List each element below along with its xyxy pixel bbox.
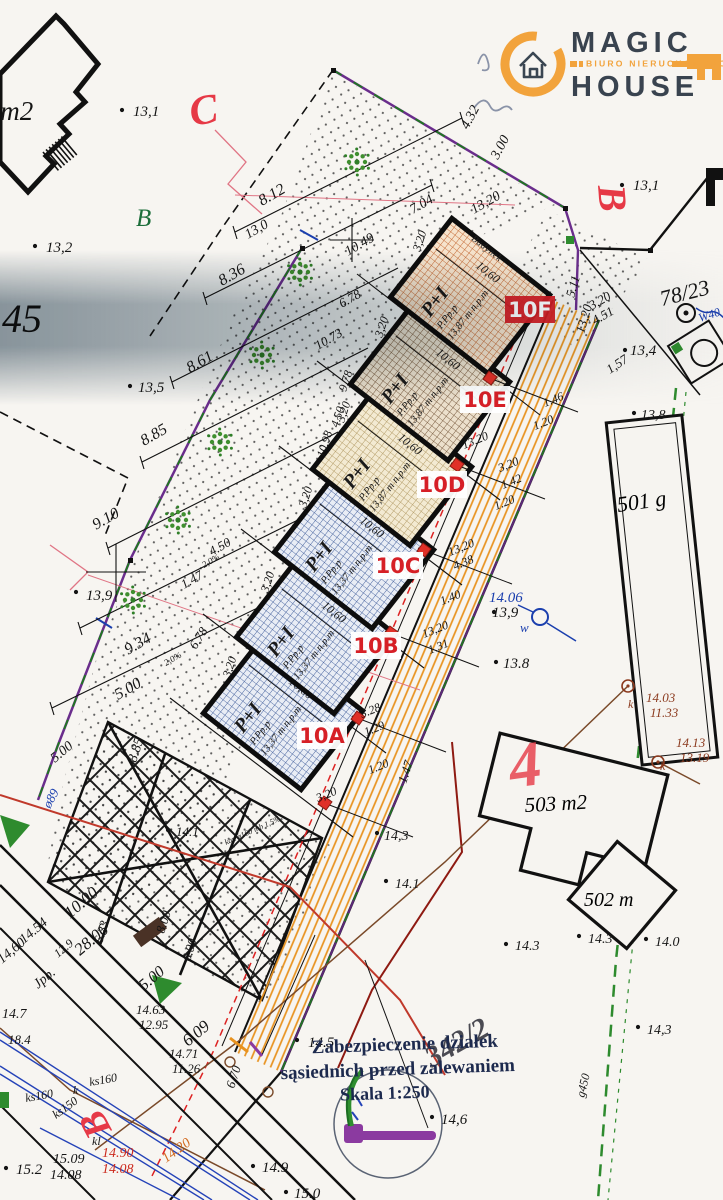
map-annotation: 3.00: [488, 133, 513, 163]
elevation-dot: [632, 411, 636, 415]
map-annotation: 14.08: [50, 1168, 82, 1183]
logo-house-icon: [520, 53, 546, 77]
elevation-dot: [504, 942, 508, 946]
map-annotation: 13,9: [86, 588, 113, 604]
map-annotation: 13,2: [46, 240, 73, 256]
plot-label-10C: 10C: [376, 554, 421, 578]
elevation-dot: [4, 1166, 8, 1170]
map-annotation: 14.90: [102, 1146, 134, 1161]
map-annotation: 15.2: [16, 1162, 43, 1178]
map-annotation: 14.3: [515, 939, 540, 954]
map-annotation: 13.19: [680, 750, 710, 765]
elevation-dot: [494, 660, 498, 664]
map-annotation: 45: [2, 296, 42, 341]
plot-label-10E: 10E: [463, 388, 507, 412]
map-annotation: 8 m2: [0, 96, 33, 126]
map-annotation: 14.20: [160, 1136, 194, 1167]
elevation-dot: [74, 590, 78, 594]
map-annotation: 9.10: [90, 505, 123, 534]
elevation-dot: [384, 879, 388, 883]
elevation-dot: [623, 348, 627, 352]
map-annotation: 15.0: [294, 1186, 321, 1200]
map-annotation: 13.8: [503, 656, 530, 672]
water-valve-symbol: [532, 609, 548, 625]
logo-word-magic: MAGIC: [571, 27, 693, 59]
map-annotation: 3,20: [313, 784, 339, 805]
logo-word-house: HOUSE: [571, 71, 699, 103]
map-annotation: 14.1: [395, 877, 420, 892]
plot-label-10B: 10B: [353, 634, 398, 658]
map-annotation: g450: [573, 1072, 592, 1099]
map-annotation: 78/23: [657, 274, 712, 310]
plot-label-10A: 10A: [299, 724, 345, 748]
map-annotation: 14.1: [176, 824, 199, 839]
legend-line2: sąsiednich przed zalewaniem: [280, 1055, 515, 1084]
elevation-dot: [577, 934, 581, 938]
elevation-dot: [375, 831, 379, 835]
map-annotation: ks150: [50, 1094, 81, 1122]
plot-label-10D: 10D: [419, 473, 466, 497]
map-annotation: 13,5: [138, 380, 165, 396]
map-annotation: 1,57: [603, 351, 631, 376]
map-annotation: 14.71: [169, 1046, 198, 1061]
map-annotation: 14.06: [489, 590, 523, 606]
map-annotation: 13,9: [492, 605, 519, 621]
map-annotation: 14.63: [136, 1002, 166, 1017]
map-annotation: 12.95: [139, 1017, 169, 1032]
green-arrow: [0, 815, 30, 848]
map-annotation: 14,6: [441, 1112, 468, 1128]
map-annotation: 14.7: [2, 1007, 28, 1022]
map-annotation: W40: [697, 305, 722, 325]
map-annotation: 11.26: [172, 1061, 201, 1076]
map-annotation: 13,0: [243, 217, 272, 242]
map-annotation: 8.85: [138, 421, 171, 450]
elevation-dot: [644, 937, 648, 941]
map-annotation: 13,4: [630, 343, 657, 359]
map-annotation: 13,1: [133, 104, 159, 120]
elevation-dot: [251, 1164, 255, 1168]
map-annotation: 15.09: [53, 1152, 85, 1167]
map-annotation: ks160: [88, 1070, 118, 1089]
map-annotation: 14.08: [102, 1162, 134, 1177]
map-annotation: 14.3: [588, 932, 613, 947]
map-annotation: 4.32: [458, 103, 483, 132]
map-annotation: w: [520, 620, 529, 635]
elevation-dot: [636, 1025, 640, 1029]
map-annotation: k: [660, 759, 666, 773]
site-plan-svg: P+IP.Pp.p13,37 m n.p.m10,60BudynekP+IP.P…: [0, 0, 723, 1200]
elevation-dot: [120, 108, 124, 112]
legend-text: Zabezpieczenie działek sąsiednich przed …: [280, 1031, 515, 1105]
map-annotation: 6.09: [178, 1016, 213, 1050]
legend-line1: Zabezpieczenie działek: [311, 1031, 498, 1059]
elevation-dot: [430, 1115, 434, 1119]
map-annotation: 14.0: [655, 935, 680, 950]
elevation-dot: [284, 1190, 288, 1194]
building-502-label: 502 m: [584, 889, 633, 911]
map-annotation: 18.4: [8, 1032, 31, 1047]
map-annotation: 14.03: [646, 690, 676, 705]
map-annotation: k: [628, 697, 634, 711]
utility-structure: [668, 321, 723, 384]
elevation-dot: [128, 384, 132, 388]
map-annotation: 13,1: [633, 178, 659, 194]
map-annotation: C: [186, 86, 223, 136]
elevation-dot: [166, 828, 170, 832]
elevation-dot: [33, 244, 37, 248]
plot-label-10F: 10F: [508, 298, 552, 322]
map-annotation: 14,3: [647, 1023, 672, 1038]
map-annotation: ks160: [24, 1086, 54, 1105]
map-annotation: 14.9: [262, 1160, 289, 1176]
magic-house-logo: MAGIC BIURO NIERUCHOMOŚCI HOUSE: [487, 14, 723, 110]
legend-scale: Skala 1:250: [340, 1081, 430, 1104]
map-annotation: k: [73, 1083, 79, 1097]
map-annotation: 11.33: [650, 705, 679, 720]
map-annotation: 14.13: [676, 735, 706, 750]
map-annotation: B: [136, 205, 151, 232]
map-annotation: 8.12: [256, 181, 289, 210]
map-annotation: B: [589, 182, 636, 214]
elevation-dot: [295, 1038, 299, 1042]
map-annotation: 14,3: [384, 829, 409, 844]
map-annotation: 13,8: [641, 408, 666, 423]
scanned-map: P+IP.Pp.p13,37 m n.p.m10,60BudynekP+IP.P…: [0, 0, 723, 1200]
map-annotation: Jpb.: [31, 965, 59, 992]
logo-tagline: BIURO NIERUCHOMOŚCI: [586, 58, 723, 69]
